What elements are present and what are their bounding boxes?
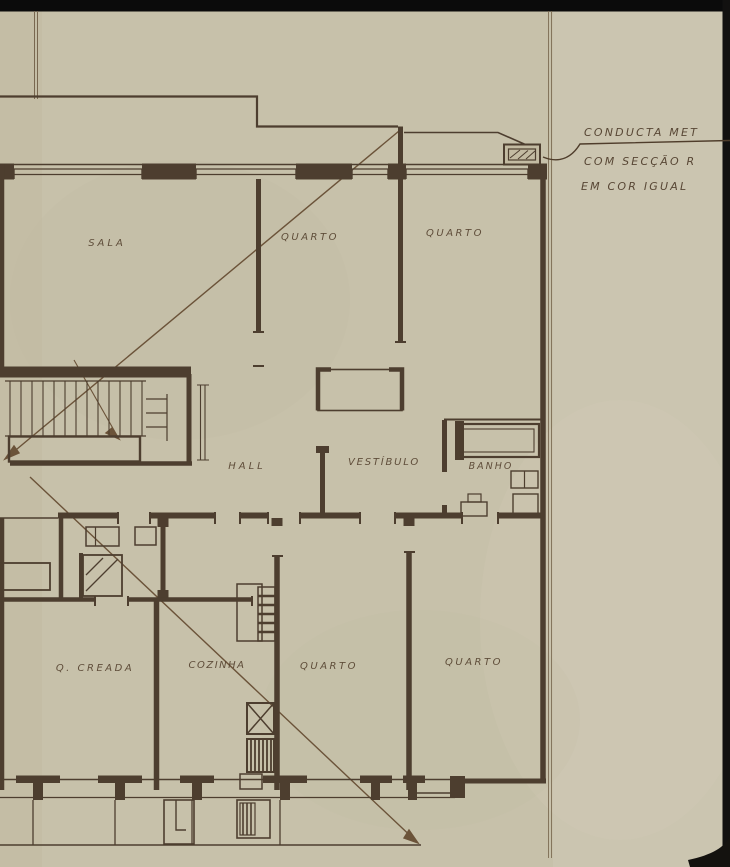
label-sala: SALA: [88, 238, 126, 249]
pier: [296, 164, 352, 180]
wall-cap: [316, 446, 329, 453]
pier-stem: [115, 783, 125, 800]
scan-edge-top: [0, 0, 730, 12]
wall-cap: [272, 518, 283, 526]
label-banho: BANHO: [469, 461, 514, 472]
annotation-line-2: COM SECÇÃO R: [584, 155, 696, 168]
wall-cap: [158, 518, 169, 527]
pier-stem: [33, 783, 43, 800]
pier-cap: [263, 776, 307, 784]
pier-cap: [180, 776, 214, 784]
label-quarto-creada: Q. CREADA: [56, 663, 134, 674]
floor-plan-drawing: SALA QUARTO QUARTO HALL VESTÍBULO BANHO …: [0, 0, 730, 867]
wall-cap: [404, 518, 415, 526]
label-quarto-bottom-right: QUARTO: [445, 657, 503, 668]
pier-cap: [403, 776, 425, 784]
pier: [388, 164, 406, 180]
pier-stem: [192, 783, 202, 800]
pier-cap: [98, 776, 142, 784]
pier-stem: [371, 783, 380, 800]
pier: [142, 164, 196, 180]
label-vestibulo: VESTÍBULO: [348, 455, 420, 468]
label-hall: HALL: [228, 461, 266, 472]
annotation-line-1: CONDUCTA MET: [584, 126, 699, 139]
annotation-line-3: EM COR IGUAL: [581, 180, 688, 193]
scan-edge-right: [723, 0, 730, 867]
label-cozinha: COZINHA: [189, 660, 246, 671]
stair-top-wall: [0, 367, 191, 378]
scanned-floor-plan-sheet: SALA QUARTO QUARTO HALL VESTÍBULO BANHO …: [0, 0, 730, 867]
paper-shade-left: [0, 11, 42, 867]
pier-stem: [408, 783, 417, 800]
pier-cap: [16, 776, 60, 784]
paper-blotch: [10, 160, 350, 440]
duct-box: [504, 145, 540, 165]
label-quarto-top-right: QUARTO: [426, 228, 484, 239]
annotation-text: CONDUCTA MET COM SECÇÃO R EM COR IGUAL: [581, 126, 699, 193]
pier-stem: [280, 783, 290, 800]
pier-cap: [360, 776, 392, 784]
label-quarto-bottom-left: QUARTO: [300, 661, 358, 672]
label-quarto-top-left: QUARTO: [281, 232, 339, 243]
